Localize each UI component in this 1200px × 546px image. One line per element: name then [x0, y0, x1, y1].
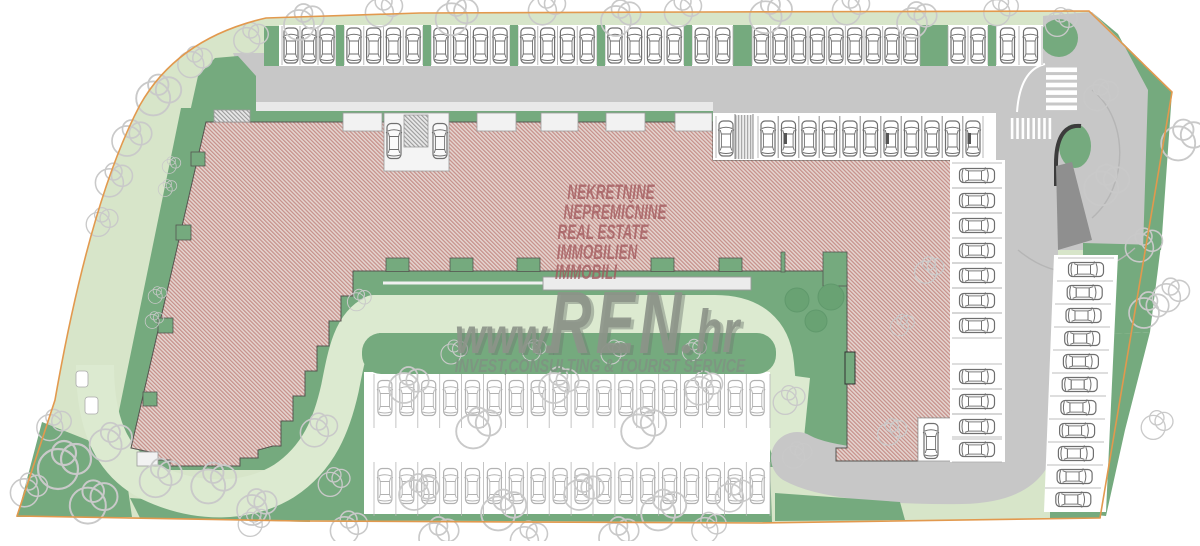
svg-text:INVEST,CONSULTING & TOURIST SE: INVEST,CONSULTING & TOURIST SERVICE: [455, 356, 746, 376]
